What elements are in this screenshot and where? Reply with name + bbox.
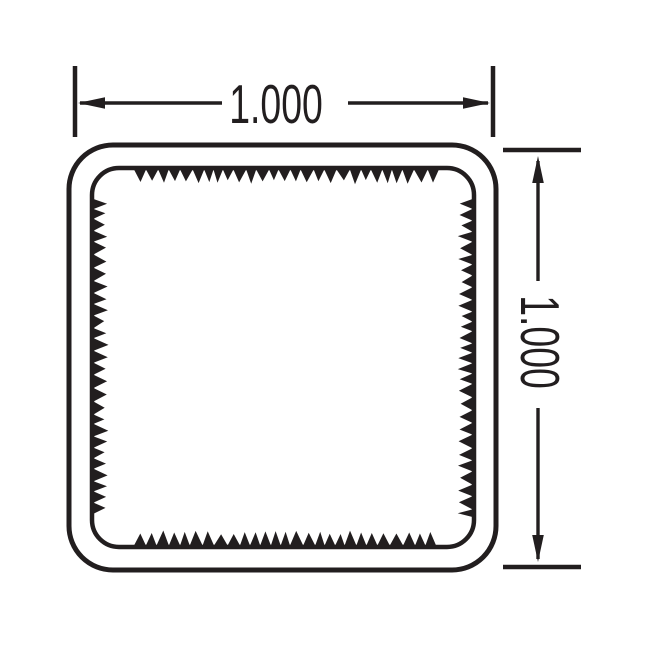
technical-drawing-page: 1.000 1.000 <box>0 0 650 650</box>
tube-cross-section <box>69 145 496 570</box>
vertical-dimension: 1.000 <box>503 150 581 567</box>
inner-profile <box>92 168 474 547</box>
v-dim-label: 1.000 <box>509 295 571 389</box>
serration-top-edge <box>134 170 439 185</box>
serration-bottom-edge <box>134 531 436 546</box>
serration-right-edge <box>458 199 473 517</box>
v-dim-arrowhead-top <box>532 156 544 183</box>
v-dim-label-group: 1.000 <box>509 295 571 389</box>
h-dim-label-group: 1.000 <box>229 73 323 135</box>
outer-profile <box>69 145 496 570</box>
v-dim-arrowhead-bottom <box>532 535 544 562</box>
h-dim-label: 1.000 <box>229 73 323 135</box>
technical-drawing-canvas: 1.000 1.000 <box>0 0 650 650</box>
h-dim-arrowhead-left <box>78 97 105 109</box>
serration-left-edge <box>94 199 109 514</box>
horizontal-dimension: 1.000 <box>75 66 493 137</box>
h-dim-arrowhead-right <box>463 97 490 109</box>
